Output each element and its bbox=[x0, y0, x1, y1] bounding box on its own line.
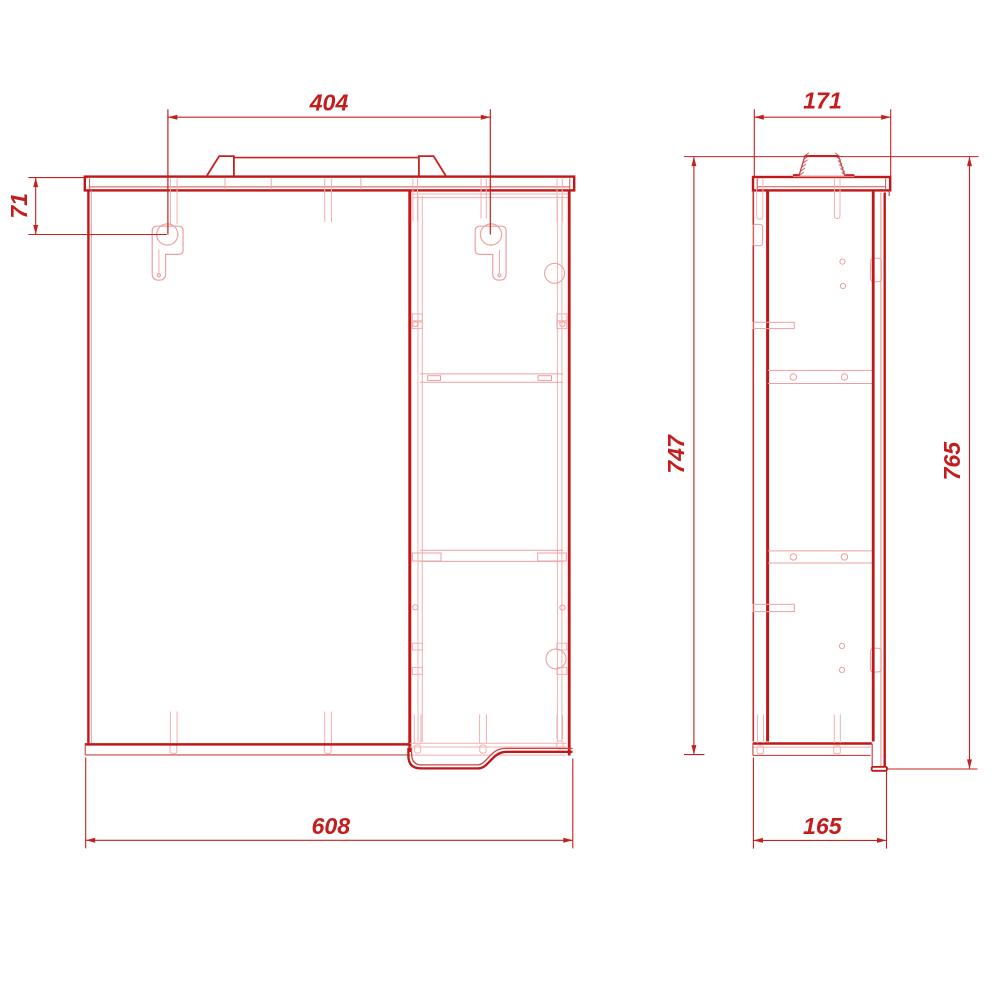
svg-text:165: 165 bbox=[803, 813, 843, 839]
svg-text:404: 404 bbox=[309, 90, 349, 116]
svg-text:171: 171 bbox=[803, 87, 842, 113]
svg-text:747: 747 bbox=[663, 434, 689, 474]
svg-text:765: 765 bbox=[939, 441, 965, 481]
svg-text:71: 71 bbox=[6, 193, 32, 219]
svg-text:608: 608 bbox=[311, 813, 350, 839]
